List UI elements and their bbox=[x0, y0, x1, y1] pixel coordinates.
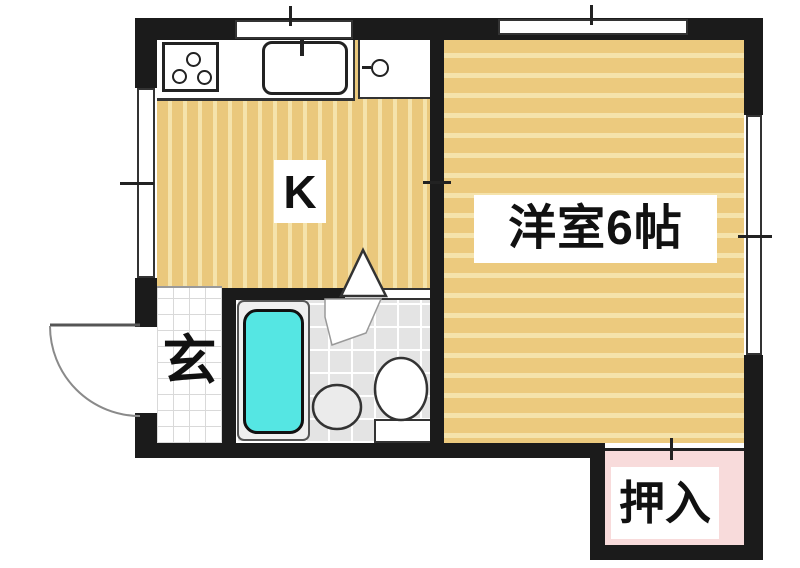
western-room-label: 洋室6帖 bbox=[508, 205, 683, 253]
western-room-label-box: 洋室6帖 bbox=[474, 195, 717, 263]
entrance-label: 玄 bbox=[163, 334, 217, 388]
round-basin-icon bbox=[313, 385, 361, 429]
entrance-label-box: 玄 bbox=[157, 330, 222, 392]
kitchen-label-box: K bbox=[274, 160, 326, 223]
toilet-icon bbox=[375, 358, 427, 420]
closet-label: 押入 bbox=[619, 480, 711, 526]
closet-label-box: 押入 bbox=[611, 467, 719, 539]
floor-plan: K 洋室6帖 玄 押入 bbox=[0, 0, 800, 568]
kitchen-label: K bbox=[283, 169, 316, 215]
folding-door-triangle-icon bbox=[341, 250, 386, 296]
swing-door-arc-icon bbox=[50, 326, 140, 416]
folding-door-panel bbox=[325, 299, 381, 345]
